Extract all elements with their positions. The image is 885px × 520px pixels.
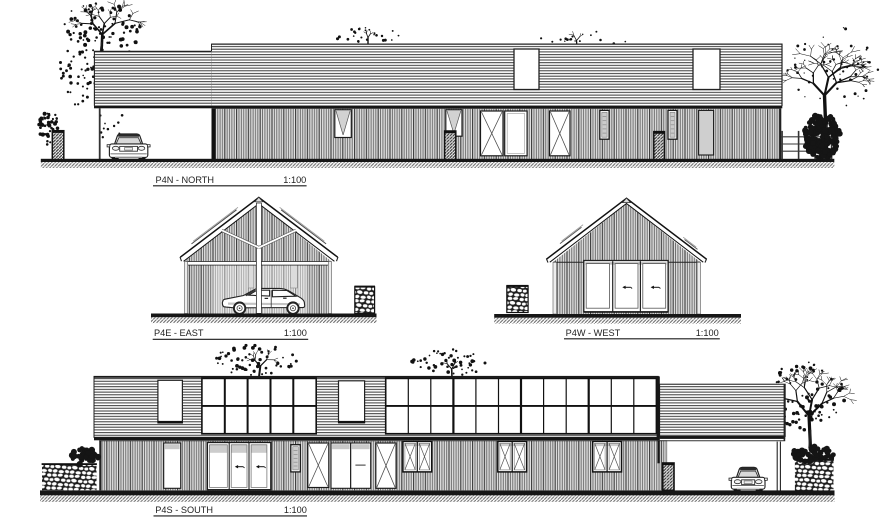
svg-text:1:100: 1:100 [696,328,719,338]
svg-text:1:100: 1:100 [284,328,307,338]
svg-text:1:100: 1:100 [284,505,307,515]
svg-text:1:100: 1:100 [283,175,306,185]
svg-text:P4N - NORTH: P4N - NORTH [156,175,215,185]
svg-text:P4E - EAST: P4E - EAST [154,328,204,338]
svg-text:P4W - WEST: P4W - WEST [566,328,621,338]
svg-text:P4S - SOUTH: P4S - SOUTH [155,505,213,515]
